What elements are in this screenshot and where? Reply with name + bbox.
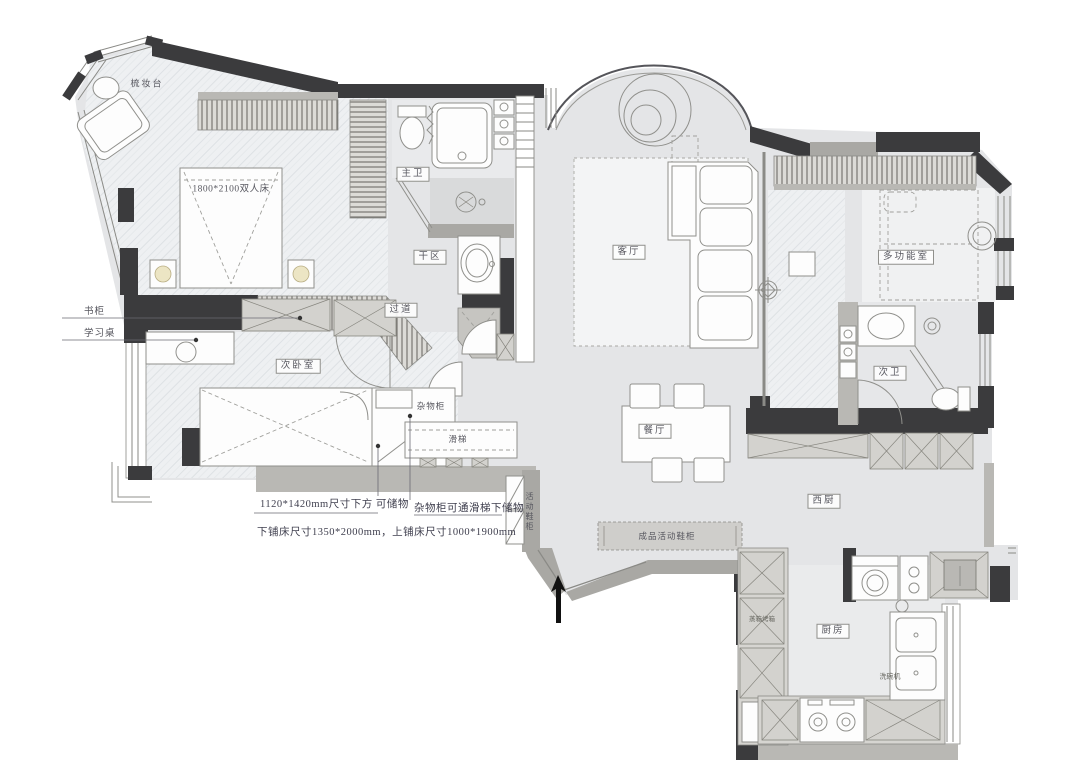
label-multi-function-room: 多功能室 [878,250,934,265]
dining-chair [674,384,704,408]
sink [896,618,936,652]
lamp [155,266,171,282]
master-wardrobe-top [198,92,338,130]
multiroom-walkway-floor [768,190,845,420]
label-master-bath: 主卫 [396,167,429,182]
floor-plan-canvas: 梳妆台 1800*2100双人床 主卫 干区 过道 客厅 多功能室 次卫 次卧室… [0,0,1080,763]
floor-plan-drawing [0,0,1080,763]
label-study-desk: 学习桌 [84,325,116,339]
sink [896,656,936,690]
label-mobile-shoe-cabinet: 活动鞋柜 [525,492,533,532]
multiroom-wardrobe [774,156,976,190]
multiroom-floor [862,188,995,302]
label-entry-shoe-cabinet: 成品活动鞋柜 [638,532,695,541]
toilet [400,117,424,149]
laundry-fixtures [852,552,988,600]
label-dry-area: 干区 [413,250,446,265]
vanity [858,306,915,346]
label-slide: 滑梯 [448,435,467,444]
label-master-bed-size: 1800*2100双人床 [192,185,269,195]
label-dining-room: 餐厅 [638,424,671,439]
annotation-cabinet-slide-storage: 杂物柜可通滑梯下储物 [414,500,524,515]
label-storage-cabinet: 杂物柜 [417,402,446,411]
small-table [789,252,815,276]
dining-chair [694,458,724,482]
label-dishwasher: 洗碗机 [880,674,901,681]
label-kitchen: 厨房 [816,624,849,639]
sofa-cushion [700,208,752,246]
sofa-cushion [700,166,752,204]
annotation-bunk-bed-sizes: 下铺床尺寸1350*2000mm，上铺床尺寸1000*1900mm [257,524,516,539]
side-table [93,77,119,99]
label-west-kitchen: 西厨 [807,494,840,509]
label-dressing-table: 梳妆台 [130,80,163,89]
label-second-bedroom: 次卧室 [276,359,321,374]
toilet [932,388,960,410]
sofa-cushion [698,250,752,292]
dining-chair [630,384,660,408]
master-wardrobe-side [350,100,386,218]
label-bookcase: 书柜 [84,303,105,317]
label-steam-oven: 蒸箱烤箱 [749,617,775,624]
annotation-under-bed-storage: 1120*1420mm尺寸下方 可储物 [260,496,409,511]
label-hallway: 过道 [384,303,417,318]
dining-chair [652,458,682,482]
sofa-cushion [698,296,752,340]
lamp [293,266,309,282]
corridor-partition [516,96,534,362]
study-desk [146,332,234,364]
washing-machine [852,556,898,600]
label-second-bath: 次卫 [873,366,906,381]
bathtub [432,103,492,168]
label-living-room: 客厅 [612,245,645,260]
